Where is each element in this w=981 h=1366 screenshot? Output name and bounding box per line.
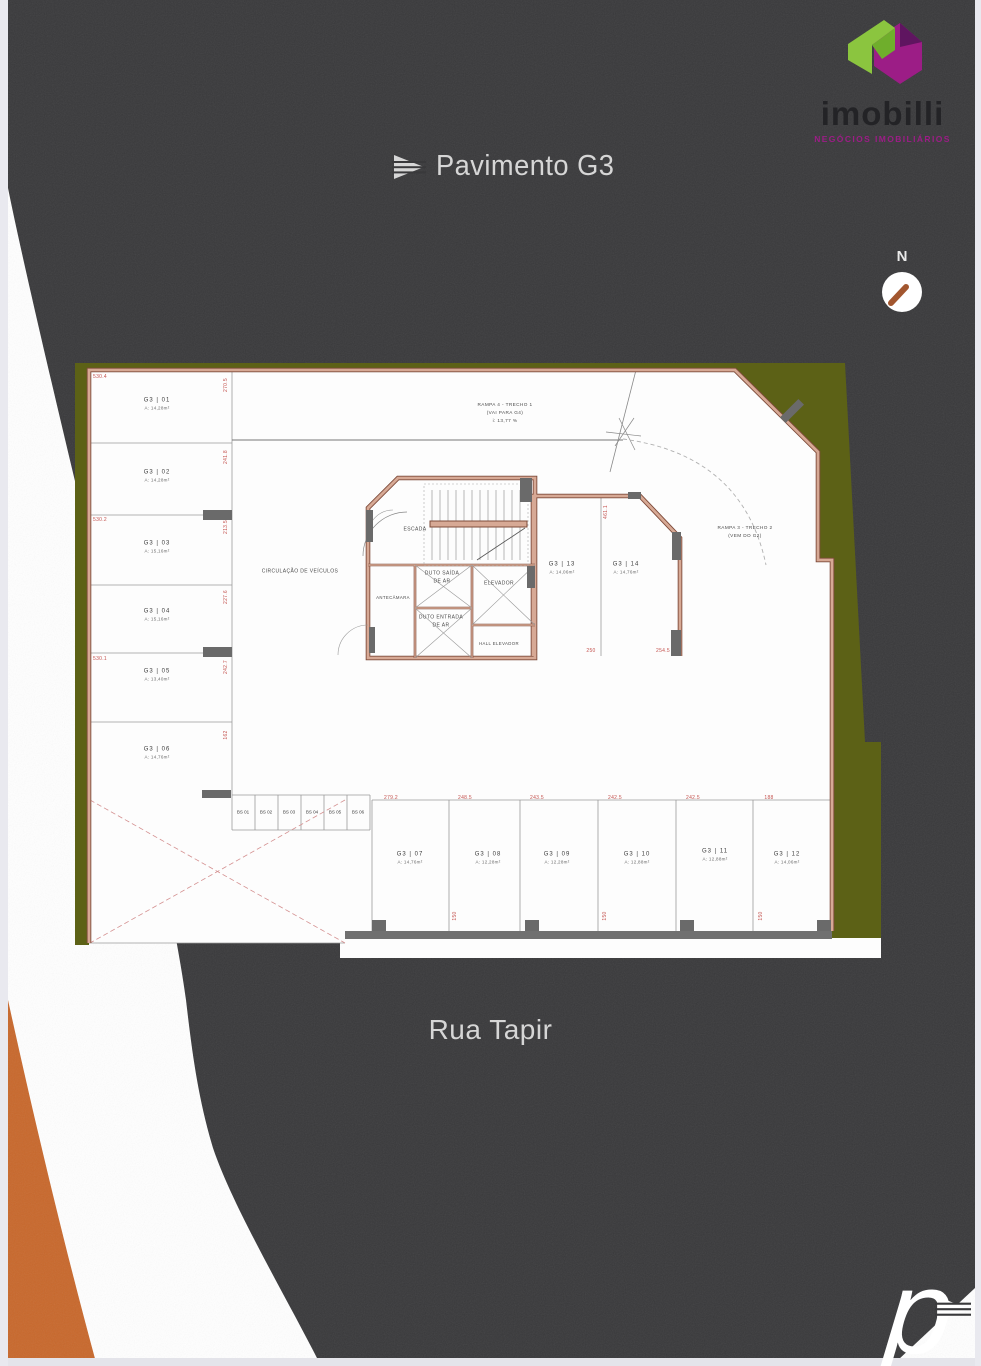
dim-bottom-inner: 150 <box>452 911 458 920</box>
brand-logo: imobilli NEGÓCIOS IMOBILIÁRIOS <box>790 16 975 144</box>
bike-stall-label: BS 02 <box>260 810 272 815</box>
label-stairs: ESCADA <box>404 526 427 534</box>
stall-area: A: 12,88m² <box>624 860 651 865</box>
stall-label-13: G3 | 13A: 14,06m² <box>549 562 576 575</box>
brand-house-icon <box>837 16 929 88</box>
stall-id: G3 | 04 <box>144 609 171 615</box>
ramp3-line2: (VEM DO G2) <box>728 533 762 538</box>
dim-stall-side: 242.7 <box>223 660 229 674</box>
title-row: Pavimento G3 <box>392 150 626 183</box>
dim-bottom-row: 242.5 <box>608 795 622 801</box>
stall-label-10: G3 | 10A: 12,88m² <box>624 852 651 865</box>
bike-stall-label: BS 06 <box>352 810 364 815</box>
stall-id: G3 | 02 <box>144 470 171 476</box>
dim-stall-side: 162 <box>223 730 229 739</box>
brand-name: imobilli <box>790 95 975 133</box>
stall-area: A: 13,40m² <box>144 677 171 682</box>
stall-label-08: G3 | 08A: 12,28m² <box>475 852 502 865</box>
dim-bottom-row: 242.5 <box>686 795 700 801</box>
ramp4-slope: i: 13,77 % <box>493 418 518 423</box>
stall-id: G3 | 12 <box>774 852 801 858</box>
brand-tagline: NEGÓCIOS IMOBILIÁRIOS <box>790 134 975 144</box>
stall-label-12: G3 | 12A: 14,06m² <box>774 852 801 865</box>
bike-stall-label: BS 04 <box>306 810 318 815</box>
stall-area: A: 14,76m² <box>144 755 171 760</box>
street-label: Rua Tapir <box>0 1014 981 1046</box>
stall-area: A: 15,16m² <box>144 617 171 622</box>
stall-area: A: 14,28m² <box>144 406 171 411</box>
stall-area: A: 14,06m² <box>549 570 576 575</box>
floor-plan-drawing <box>75 360 882 968</box>
label-ramp3: RAMPA 3 - TRECHO 2 (VEM DO G2) <box>718 524 773 540</box>
label-ramp4: RAMPA 4 - TRECHO 1 (VAI PARA G4) i: 13,7… <box>478 401 533 425</box>
label-elevator-hall: HALL ELEVADOR <box>479 641 519 647</box>
dim-left: 530.1 <box>93 656 107 662</box>
left-page-edge <box>0 0 8 1366</box>
dim-bottom-row: 248.5 <box>458 795 472 801</box>
stall-label-14: G3 | 14A: 14,76m² <box>613 562 640 575</box>
stall-label-09: G3 | 09A: 12,28m² <box>544 852 571 865</box>
stall-area: A: 12,88m² <box>702 857 728 862</box>
stall-id: G3 | 11 <box>702 849 728 855</box>
stall-id: G3 | 13 <box>549 562 576 568</box>
compass-north-label: N <box>872 248 932 265</box>
ramp3-line1: RAMPA 3 - TRECHO 2 <box>718 525 773 530</box>
bottom-page-edge <box>0 1358 981 1366</box>
stall-area: A: 12,28m² <box>544 860 571 865</box>
stall-label-04: G3 | 04A: 15,16m² <box>144 609 171 622</box>
bike-stall-label: BS 03 <box>283 810 295 815</box>
stall-id: G3 | 14 <box>613 562 640 568</box>
label-elevator: ELEVADOR <box>484 580 514 588</box>
plane-icon <box>392 154 426 180</box>
label-air-out: DUTO SAÍDA DE AR <box>425 571 459 586</box>
dim-left: 530.4 <box>93 374 107 380</box>
page-title: Pavimento G3 <box>436 150 614 183</box>
stall-area: A: 14,76m² <box>613 570 640 575</box>
right-page-edge <box>975 0 981 1366</box>
compass-icon <box>879 269 925 315</box>
stall-area: A: 14,28m² <box>144 478 171 483</box>
stall-area: A: 15,16m² <box>144 549 171 554</box>
stall-id: G3 | 09 <box>544 852 571 858</box>
dim-stall-13: 250 <box>586 648 595 654</box>
stall-label-07: G3 | 07A: 14,76m² <box>397 852 424 865</box>
stall-id: G3 | 01 <box>144 398 171 404</box>
label-circulation: CIRCULAÇÃO DE VEÍCULOS <box>262 568 339 576</box>
dim-stall-side: 213.5 <box>223 520 229 534</box>
stall-label-01: G3 | 01A: 14,28m² <box>144 398 171 411</box>
sidewalk <box>340 938 881 958</box>
p-logo-plane-icon <box>935 1294 971 1324</box>
stall-id: G3 | 03 <box>144 541 171 547</box>
dim-right-side: 461.1 <box>603 505 609 519</box>
stall-area: A: 14,76m² <box>397 860 424 865</box>
stall-area: A: 12,28m² <box>475 860 502 865</box>
ramp4-line1: RAMPA 4 - TRECHO 1 <box>478 402 533 407</box>
dim-bottom-row: 188 <box>764 795 773 801</box>
stall-label-03: G3 | 03A: 15,16m² <box>144 541 171 554</box>
dim-bottom-row: 279.2 <box>384 795 398 801</box>
label-air-out-line1: DUTO SAÍDA <box>425 571 459 577</box>
dim-stall-side: 241.8 <box>223 450 229 464</box>
stall-id: G3 | 06 <box>144 747 171 753</box>
label-air-in: DUTO ENTRADA DE AR <box>419 615 463 630</box>
stall-label-05: G3 | 05A: 13,40m² <box>144 669 171 682</box>
stall-id: G3 | 05 <box>144 669 171 675</box>
stall-area: A: 14,06m² <box>774 860 801 865</box>
label-air-in-line2: DE AR <box>432 622 449 628</box>
stall-id: G3 | 08 <box>475 852 502 858</box>
bottom-wall <box>345 931 832 939</box>
stall-id: G3 | 10 <box>624 852 651 858</box>
slide: { "header": { "logo": { "name": "imobill… <box>0 0 981 1366</box>
compass: N <box>872 248 932 320</box>
dim-stall-14: 254.5 <box>656 648 670 654</box>
stall-label-02: G3 | 02A: 14,28m² <box>144 470 171 483</box>
bike-stall-label: BS 01 <box>237 810 249 815</box>
dim-bottom-inner: 150 <box>758 911 764 920</box>
dim-bottom-inner: 150 <box>602 911 608 920</box>
label-air-out-line2: DE AR <box>433 578 450 584</box>
floor-plan: CIRCULAÇÃO DE VEÍCULOS ESCADA ANTECÂMARA… <box>75 360 882 968</box>
dim-stall-side: 227.6 <box>223 590 229 604</box>
stall-id: G3 | 07 <box>397 852 424 858</box>
label-air-in-line1: DUTO ENTRADA <box>419 615 463 621</box>
dim-left: 530.2 <box>93 517 107 523</box>
dim-stall-side: 270.5 <box>223 378 229 392</box>
ramp4-line2: (VAI PARA G4) <box>487 410 524 415</box>
label-antechamber: ANTECÂMARA <box>376 595 410 601</box>
stall-label-06: G3 | 06A: 14,76m² <box>144 747 171 760</box>
dim-bottom-row: 243.5 <box>530 795 544 801</box>
stall-label-11: G3 | 11A: 12,88m² <box>702 849 728 862</box>
bike-stall-label: BS 05 <box>329 810 341 815</box>
